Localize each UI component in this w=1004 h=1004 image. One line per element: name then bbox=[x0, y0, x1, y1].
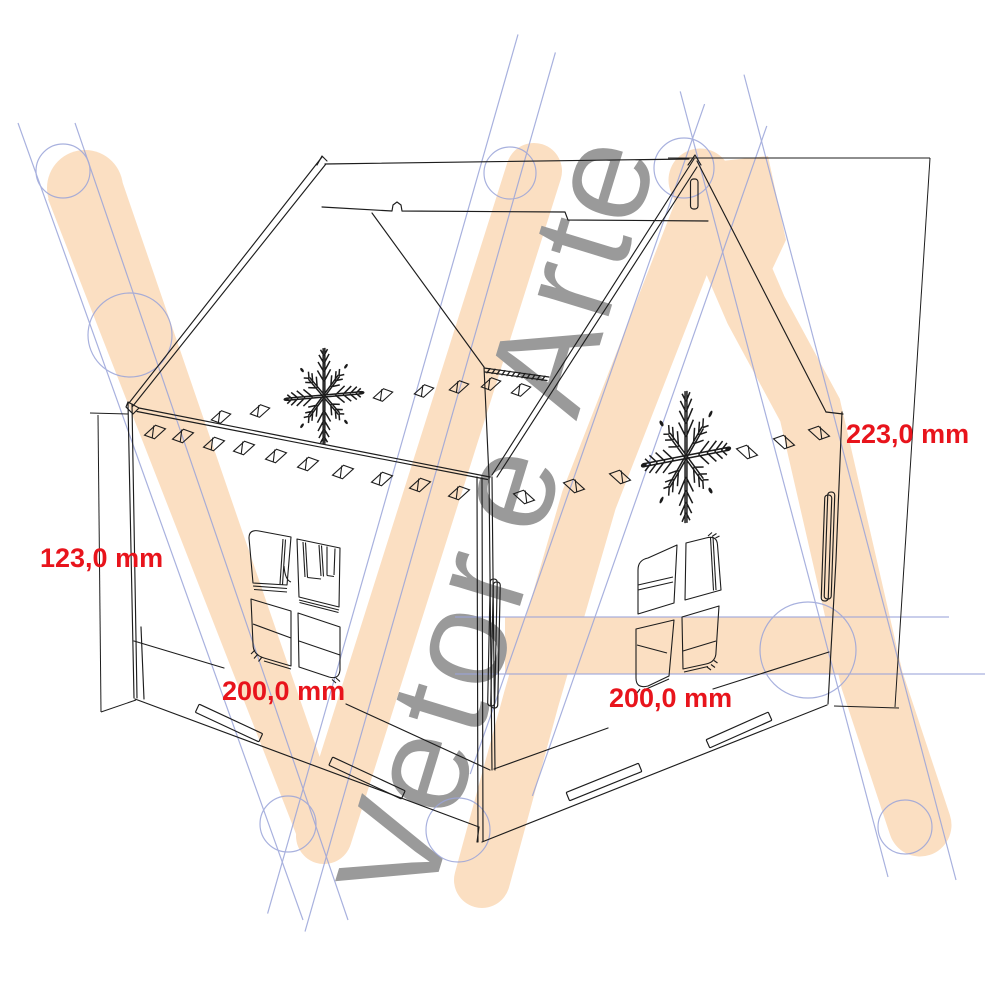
svg-text:123,0 mm: 123,0 mm bbox=[40, 543, 163, 573]
svg-text:200,0 mm: 200,0 mm bbox=[609, 683, 732, 713]
svg-text:200,0 mm: 200,0 mm bbox=[222, 676, 345, 706]
svg-text:223,0 mm: 223,0 mm bbox=[846, 419, 969, 449]
